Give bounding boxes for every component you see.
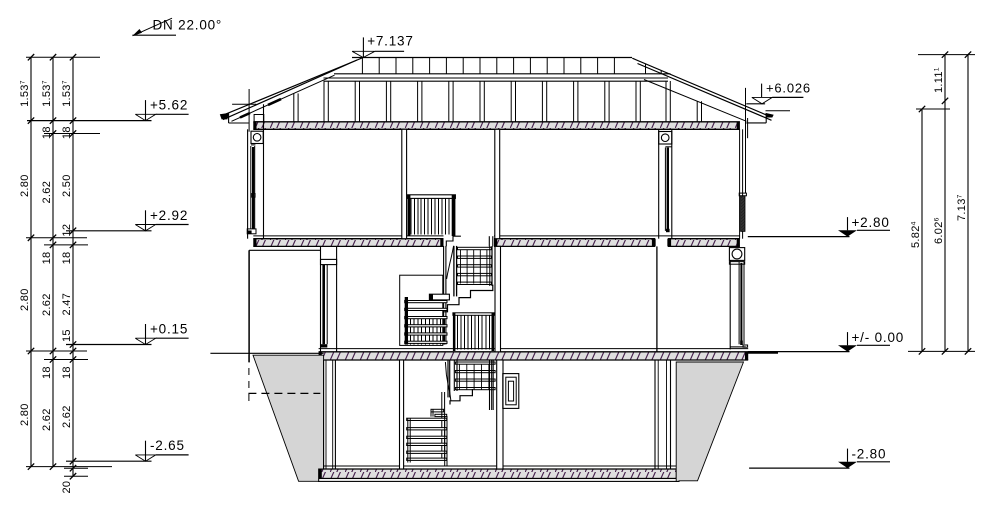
svg-text:2.62: 2.62 [61, 405, 73, 428]
svg-text:+6.026: +6.026 [766, 81, 811, 96]
svg-text:DN 22.00°: DN 22.00° [153, 18, 223, 33]
svg-text:+0.15: +0.15 [150, 322, 188, 337]
svg-text:2.62: 2.62 [41, 181, 53, 204]
svg-text:+/- 0.00: +/- 0.00 [852, 330, 905, 345]
svg-text:+2.80: +2.80 [852, 215, 890, 230]
svg-text:+5.62: +5.62 [150, 98, 188, 113]
svg-text:18: 18 [41, 252, 53, 265]
svg-text:18: 18 [61, 126, 73, 139]
svg-text:2.80: 2.80 [19, 174, 31, 197]
svg-text:12: 12 [61, 224, 73, 237]
svg-text:2.80: 2.80 [19, 403, 31, 426]
svg-text:-2.80: -2.80 [852, 447, 887, 462]
svg-text:2.80: 2.80 [19, 288, 31, 311]
svg-text:18: 18 [61, 252, 73, 265]
svg-text:+2.92: +2.92 [150, 208, 188, 223]
svg-text:20: 20 [61, 481, 73, 494]
svg-text:+7.137: +7.137 [367, 33, 413, 48]
svg-text:2.62: 2.62 [41, 293, 53, 316]
svg-text:-2.65: -2.65 [150, 438, 185, 453]
svg-text:18: 18 [41, 126, 53, 139]
svg-text:18: 18 [41, 366, 53, 379]
svg-text:2.50: 2.50 [61, 174, 73, 197]
svg-text:2.47: 2.47 [61, 293, 73, 316]
svg-text:18: 18 [61, 366, 73, 379]
svg-text:2.62: 2.62 [41, 408, 53, 431]
svg-text:15: 15 [61, 329, 73, 342]
